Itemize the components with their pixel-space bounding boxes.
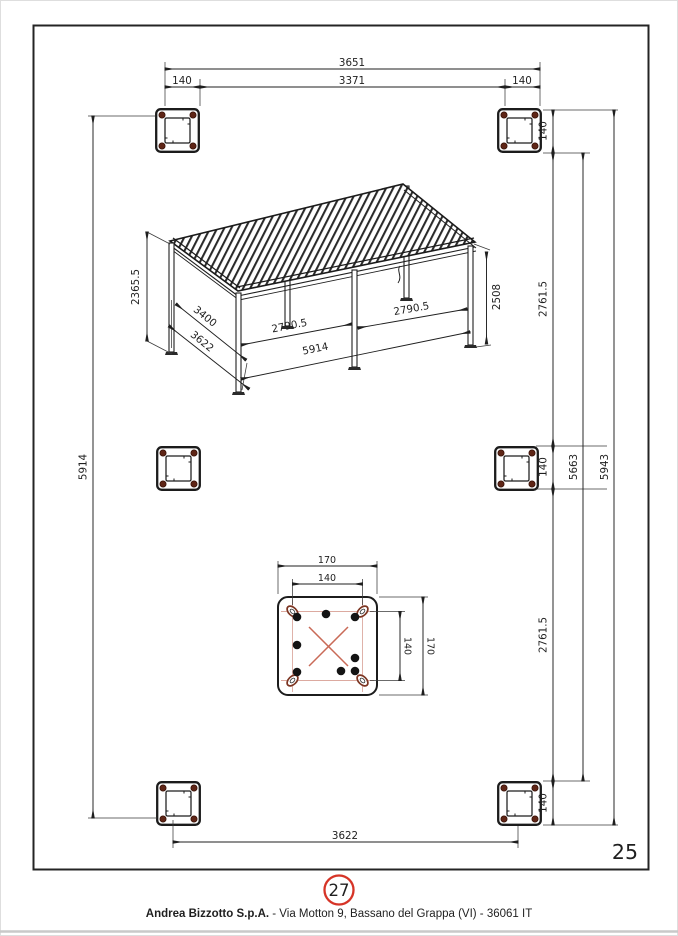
dim-top-total: 3651 [339, 57, 365, 69]
dim-left-total: 5914 [78, 454, 90, 480]
dim-plate-width-outer: 170 [318, 555, 336, 566]
anchor-plate-bottom-right [498, 782, 541, 825]
dim-right-outer-total: 5943 [599, 454, 611, 480]
page-number: 25 [612, 840, 638, 864]
page-border [34, 26, 649, 870]
footer-company: Andrea Bizzotto S.p.A. [146, 908, 269, 920]
dim-pergola-height-back: 2365.5 [130, 269, 142, 305]
pergola-post-front-middle [352, 270, 357, 367]
dim-plate-height-outer: 170 [425, 637, 436, 655]
dim-right-mid-plate: 140 [538, 457, 550, 477]
anchor-plate-top-right [498, 109, 541, 152]
dim-pergola-height-front: 2508 [491, 284, 503, 310]
dim-right-upper-span: 2761.5 [538, 281, 550, 317]
step-callout-number: 27 [329, 881, 350, 900]
dim-right-inner-total: 5663 [568, 454, 580, 480]
dim-right-bottom-plate: 140 [538, 793, 550, 813]
manual-page: 3651 140 3371 140 140 2761.5 140 2761.5 … [0, 0, 678, 936]
footer-line: Andrea Bizzotto S.p.A. - Via Motton 9, B… [146, 908, 532, 920]
dim-right-top-plate: 140 [538, 121, 550, 141]
anchor-plate-top-left [156, 109, 199, 152]
anchor-plate-bottom-left [157, 782, 200, 825]
dim-plate-height-bolts: 140 [402, 637, 413, 655]
dim-top-inner: 3371 [339, 75, 365, 87]
pergola-foot-front-middle [348, 367, 361, 370]
pergola-foot-front-left [232, 392, 245, 395]
dim-plate-width-bolts: 140 [318, 573, 336, 584]
dim-bottom-span: 3622 [332, 830, 358, 842]
anchor-plate-mid-right [495, 447, 538, 490]
pergola-foot-front-right [464, 345, 477, 348]
pergola-post-front-right [468, 246, 473, 345]
footer-address: - Via Motton 9, Bassano del Grappa (VI) … [269, 908, 532, 920]
anchor-plate-mid-left [157, 447, 200, 490]
installation-drawing: 3651 140 3371 140 140 2761.5 140 2761.5 … [0, 0, 678, 936]
dim-top-left-offset: 140 [172, 75, 192, 87]
dim-top-right-offset: 140 [512, 75, 532, 87]
pergola-foot-back-right [400, 298, 413, 301]
pergola-post-front-left [236, 293, 241, 392]
dim-right-lower-span: 2761.5 [538, 617, 550, 653]
